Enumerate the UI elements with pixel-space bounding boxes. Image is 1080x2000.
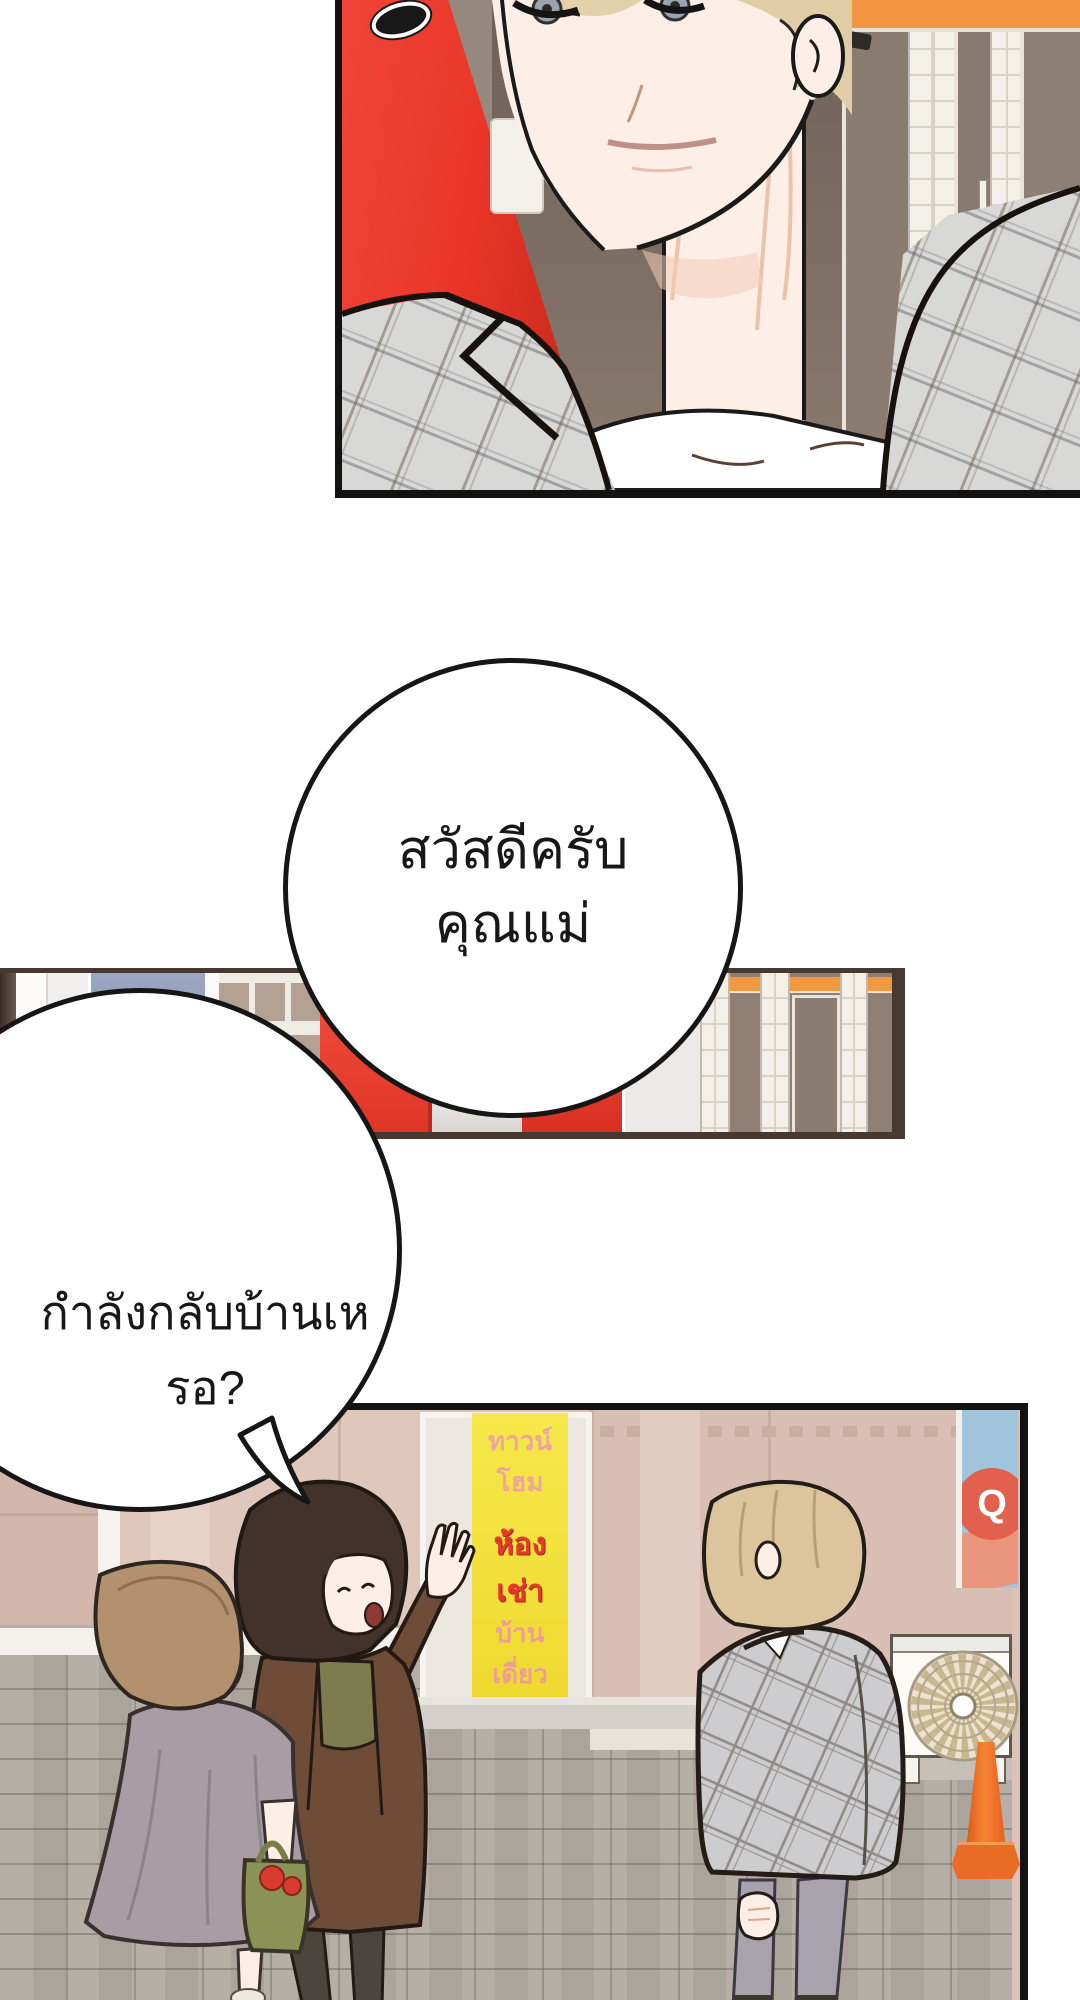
strip-right-wall [700, 973, 892, 1132]
jacket-outlines [342, 0, 1080, 490]
panel-storefront-closeup [335, 0, 1080, 498]
comic-page: ของด กง [0, 0, 1080, 2000]
greeting-line2: คุณแม่ [288, 887, 738, 961]
speech-bubble-greeting: สวัสดีครับ คุณแม่ [283, 658, 743, 1118]
speech-bubble-tail [180, 1390, 350, 1530]
greeting-line1: สวัสดีครับ [288, 813, 738, 887]
man-figure [698, 1482, 903, 2000]
